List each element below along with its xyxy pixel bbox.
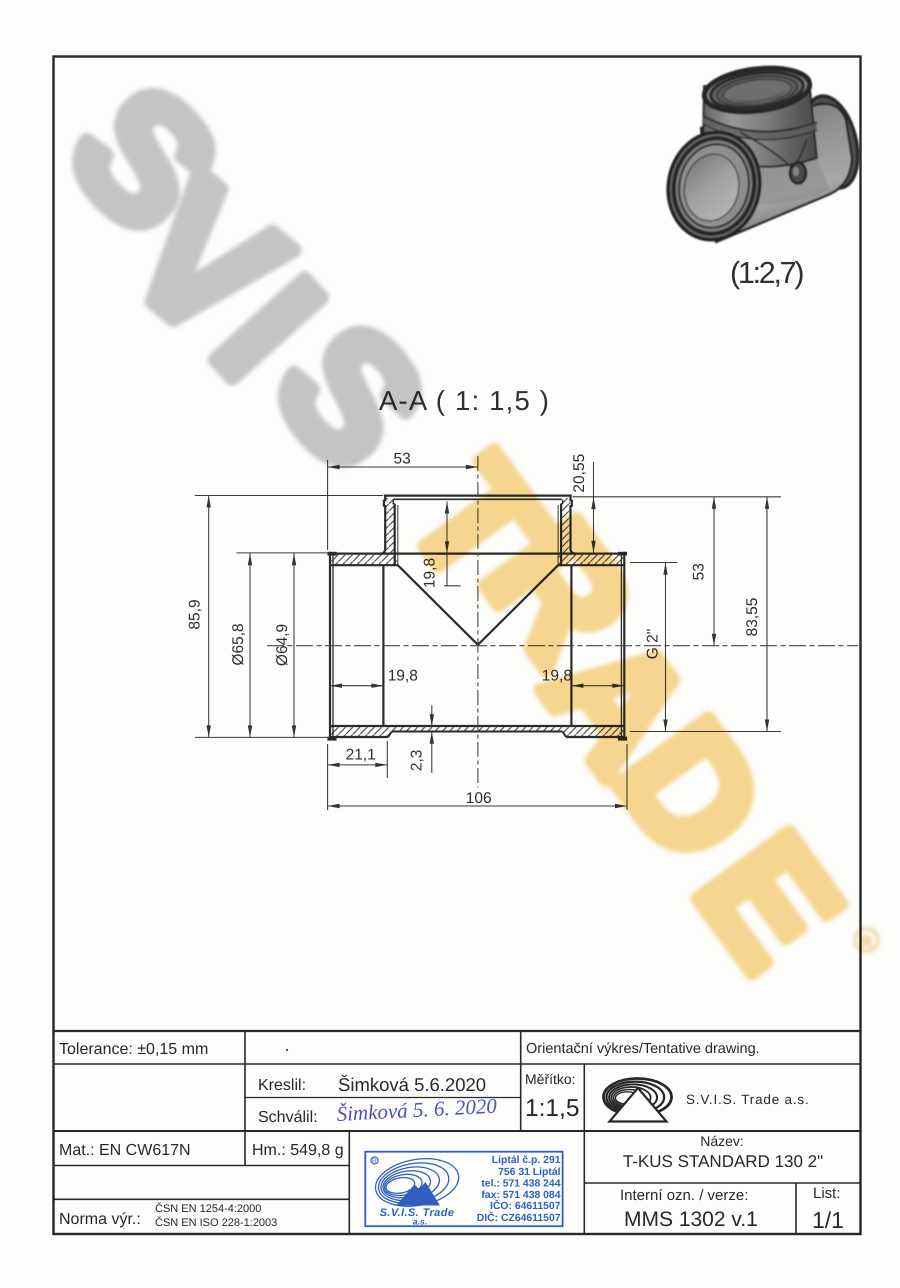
svg-text:21,1: 21,1 xyxy=(346,747,376,764)
svg-text:Ø64,9: Ø64,9 xyxy=(274,624,291,666)
svg-text:IČO: 64611507: IČO: 64611507 xyxy=(490,1199,561,1212)
svg-text:Liptál č.p. 291: Liptál č.p. 291 xyxy=(492,1155,561,1166)
svg-text:Tolerance: ±0,15 mm: Tolerance: ±0,15 mm xyxy=(59,1041,208,1058)
svg-text:tel.: 571 438 244: tel.: 571 438 244 xyxy=(481,1178,560,1189)
svg-text:ČSN EN ISO 228-1:2003: ČSN EN ISO 228-1:2003 xyxy=(155,1216,277,1229)
svg-text:R: R xyxy=(372,1158,377,1165)
svg-text:Měřítko:: Měřítko: xyxy=(525,1071,576,1087)
svg-text:19,8: 19,8 xyxy=(388,668,418,685)
svg-text:List:: List: xyxy=(813,1185,841,1202)
svg-text:Hm.: 549,8 g: Hm.: 549,8 g xyxy=(252,1142,344,1159)
svg-text:1:1,5: 1:1,5 xyxy=(525,1095,580,1122)
svg-text:S.V.I.S. Trade a.s.: S.V.I.S. Trade a.s. xyxy=(686,1092,810,1107)
svg-text:Interní ozn. / verze:: Interní ozn. / verze: xyxy=(620,1187,748,1204)
svg-text:MMS 1302 v.1: MMS 1302 v.1 xyxy=(624,1208,758,1231)
svg-text:T-KUS STANDARD 130 2": T-KUS STANDARD 130 2" xyxy=(623,1152,823,1171)
svg-text:Kreslil:: Kreslil: xyxy=(258,1077,306,1094)
svg-text:Orientační výkres/Tentative dr: Orientační výkres/Tentative drawing. xyxy=(526,1041,760,1057)
svg-text:R: R xyxy=(861,934,873,951)
svg-text:Mat.: EN CW617N: Mat.: EN CW617N xyxy=(59,1142,191,1159)
svg-text:fax: 571 438 084: fax: 571 438 084 xyxy=(481,1190,560,1201)
svg-text:53: 53 xyxy=(394,451,411,468)
svg-text:85,9: 85,9 xyxy=(187,599,204,629)
svg-text:83,55: 83,55 xyxy=(744,598,761,637)
svg-text:756 31 Liptál: 756 31 Liptál xyxy=(498,1167,560,1178)
svg-text:(1:2,7): (1:2,7) xyxy=(730,256,805,290)
svg-text:2,3: 2,3 xyxy=(409,750,426,772)
svg-text:Název:: Název: xyxy=(700,1133,744,1149)
svg-text:Schválil:: Schválil: xyxy=(258,1109,318,1126)
svg-text:53: 53 xyxy=(690,563,707,580)
svg-text:a.s.: a.s. xyxy=(413,1217,427,1227)
svg-text:Šimková 5.6.2020: Šimková 5.6.2020 xyxy=(338,1074,486,1095)
svg-text:20,55: 20,55 xyxy=(571,454,588,493)
svg-text:ČSN EN 1254-4:2000: ČSN EN 1254-4:2000 xyxy=(155,1202,261,1215)
svg-text:1/1: 1/1 xyxy=(812,1207,844,1233)
svg-text:Norma výr.:: Norma výr.: xyxy=(59,1211,141,1228)
svg-text:DIČ: CZ64611507: DIČ: CZ64611507 xyxy=(477,1211,561,1224)
svg-text:106: 106 xyxy=(466,790,492,807)
svg-text:Ø65,8: Ø65,8 xyxy=(230,623,247,665)
